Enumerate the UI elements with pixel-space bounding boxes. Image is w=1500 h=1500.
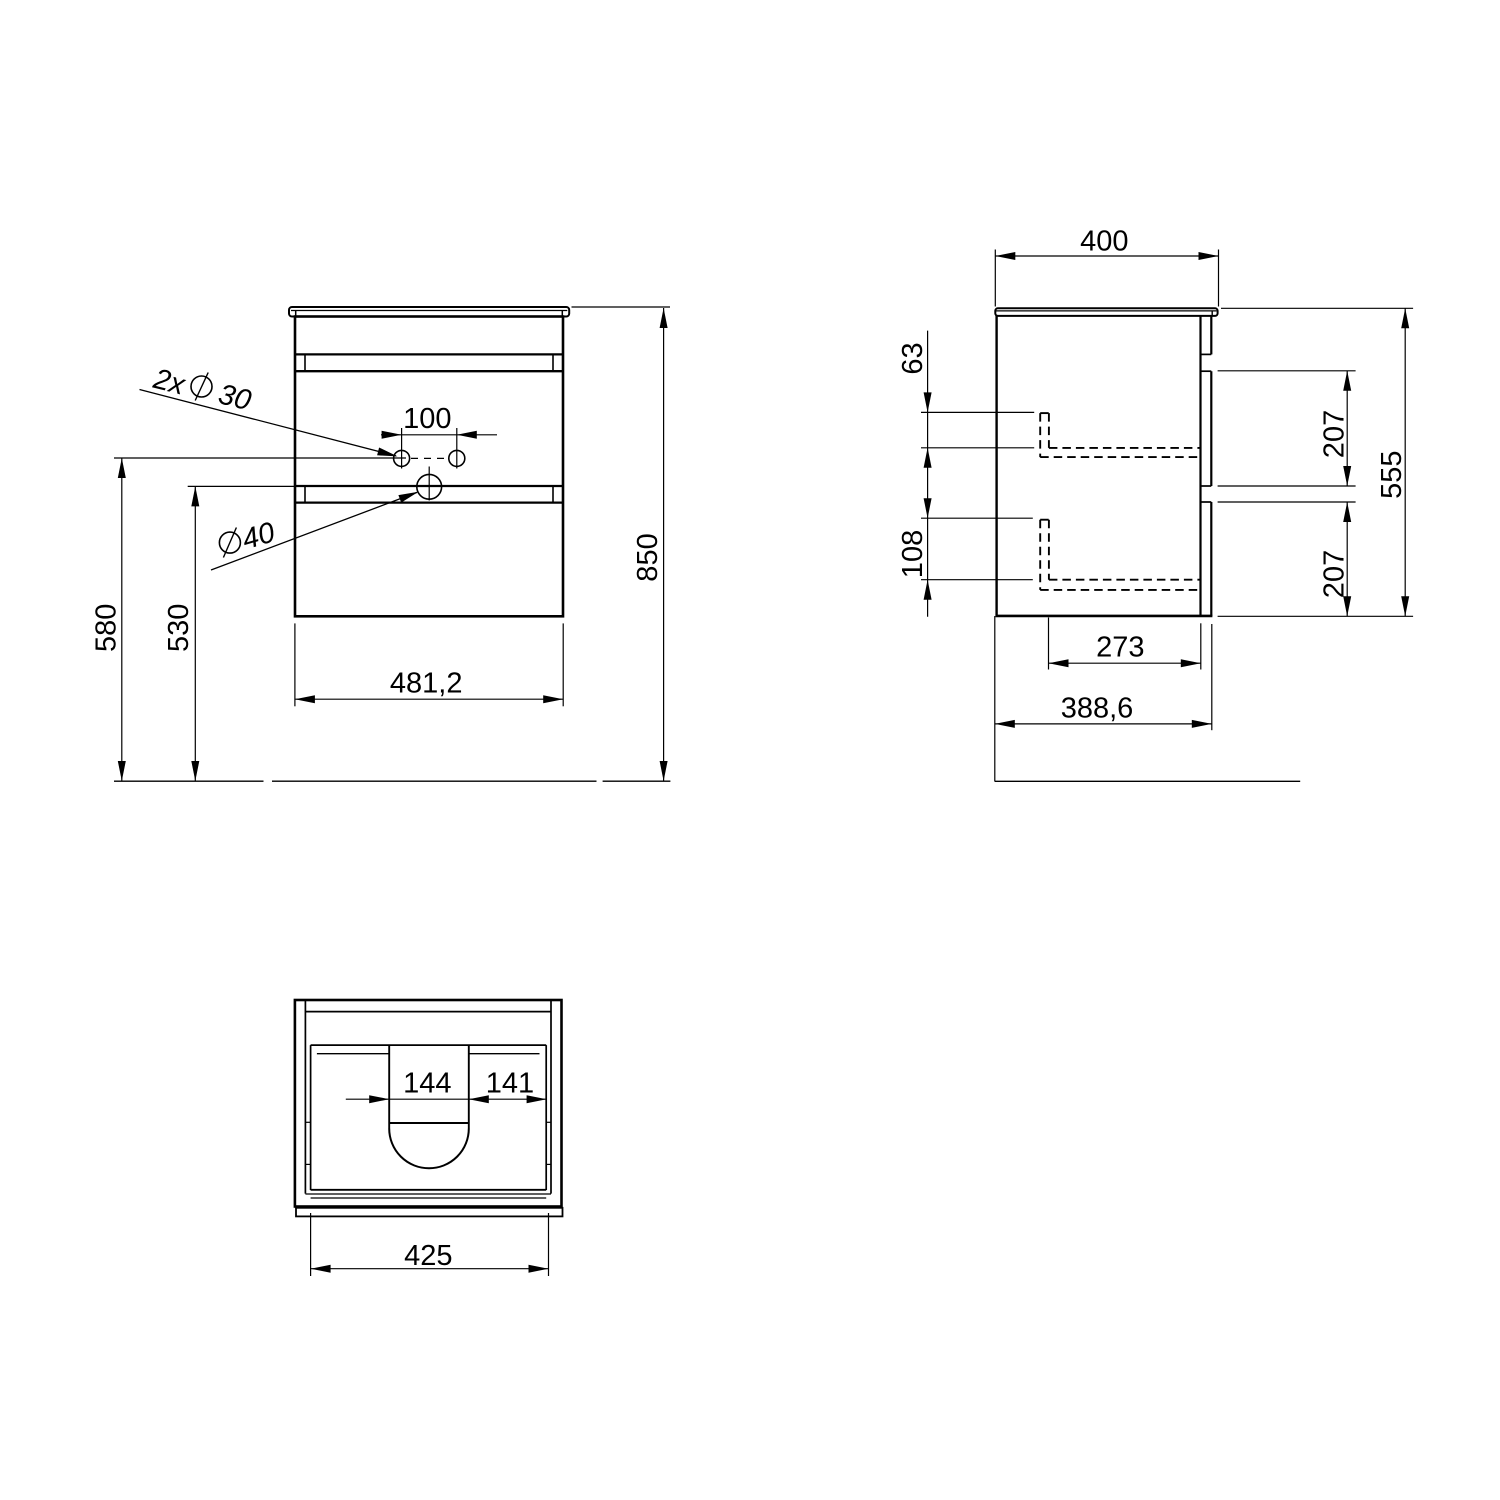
svg-text:108: 108 (897, 530, 929, 578)
svg-text:555: 555 (1376, 451, 1408, 499)
svg-text:100: 100 (403, 403, 451, 435)
svg-text:400: 400 (1080, 226, 1128, 258)
svg-text:425: 425 (404, 1240, 452, 1272)
svg-text:388,6: 388,6 (1061, 693, 1134, 725)
svg-text:580: 580 (91, 604, 123, 652)
svg-text:63: 63 (897, 342, 929, 374)
svg-text:530: 530 (163, 604, 195, 652)
svg-text:207: 207 (1319, 550, 1351, 598)
svg-text:207: 207 (1319, 410, 1351, 458)
svg-text:141: 141 (486, 1068, 534, 1100)
svg-text:273: 273 (1096, 632, 1144, 664)
svg-text:144: 144 (403, 1068, 451, 1100)
svg-text:481,2: 481,2 (390, 668, 463, 700)
svg-text:850: 850 (632, 533, 664, 581)
